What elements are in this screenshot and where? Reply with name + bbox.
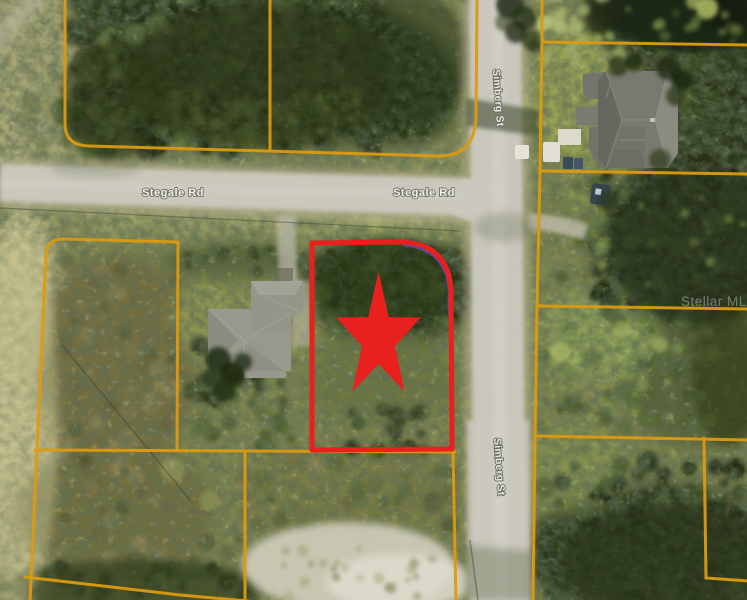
svg-text:Stegale Rd: Stegale Rd: [142, 187, 204, 199]
svg-text:Stegale Rd: Stegale Rd: [393, 187, 455, 199]
